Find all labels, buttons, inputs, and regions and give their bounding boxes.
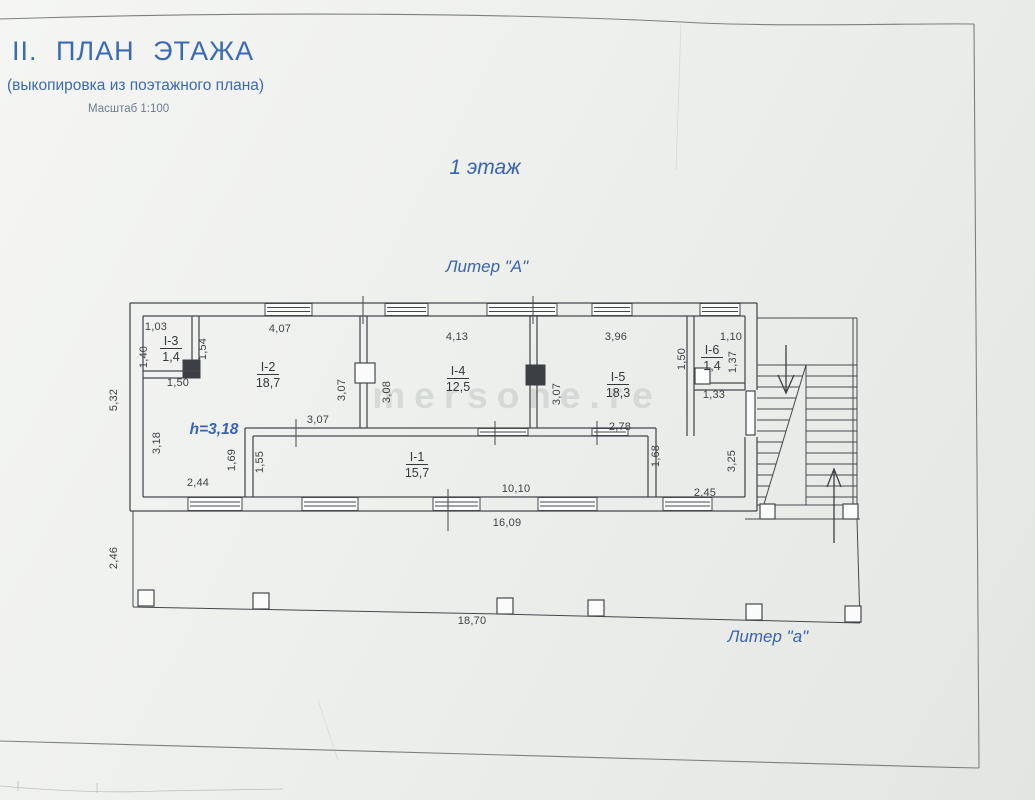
dimension-label: 3,96 xyxy=(605,331,627,343)
dimension-label: 5,32 xyxy=(108,389,120,411)
room-area: 12,5 xyxy=(446,380,470,394)
dimension-label: 1,33 xyxy=(703,389,725,401)
room-number: I-6 xyxy=(705,343,720,357)
dimension-label: 3,07 xyxy=(336,379,348,401)
room-area: 1,4 xyxy=(162,350,179,364)
window xyxy=(487,304,557,316)
down-arrow-icon xyxy=(778,345,794,393)
dimension-label: 1,54 xyxy=(197,338,209,360)
room-number: I-4 xyxy=(451,364,466,378)
dimension-label: 2,44 xyxy=(187,477,209,489)
paper-crease-line xyxy=(318,700,338,760)
post xyxy=(843,504,858,519)
window xyxy=(663,498,712,511)
building-label: Литер "А" xyxy=(445,257,529,276)
dimension-label: 4,13 xyxy=(446,331,468,343)
glazed-opening xyxy=(478,429,528,436)
room-number: I-3 xyxy=(164,334,179,348)
post xyxy=(588,600,604,616)
dimension-label: 1,55 xyxy=(254,451,266,473)
dimension-label: 3,07 xyxy=(307,414,329,426)
post xyxy=(746,604,762,620)
paper-fold-line xyxy=(676,24,681,170)
dimension-label: 2,78 xyxy=(609,421,631,433)
floor-plan-drawing: mersone.re xyxy=(0,0,1035,800)
room-area: 18,3 xyxy=(606,386,630,400)
scanned-floor-plan-page: { "page": { "title": "II. ПЛАН ЭТАЖА", "… xyxy=(0,0,1035,800)
dimension-label: 16,09 xyxy=(493,517,522,529)
window xyxy=(538,498,597,511)
dimension-label: 1,37 xyxy=(727,351,739,373)
room-number: I-1 xyxy=(410,450,425,464)
stair-cut-line xyxy=(764,365,806,504)
window xyxy=(433,498,480,511)
dimension-label: 2,45 xyxy=(694,487,716,499)
room-area: 15,7 xyxy=(405,466,429,480)
north-windows xyxy=(265,304,740,316)
pier xyxy=(355,363,375,383)
post xyxy=(845,606,861,622)
room-area: 1,4 xyxy=(703,359,720,373)
dimension-label: 3,18 xyxy=(151,432,163,454)
window xyxy=(302,498,358,511)
dimension-label: 3,07 xyxy=(551,383,563,405)
post xyxy=(253,593,269,609)
dimension-label: 1,50 xyxy=(676,348,688,370)
dimension-label: 4,07 xyxy=(269,323,291,335)
up-arrow-icon xyxy=(827,469,841,543)
pier xyxy=(183,360,200,378)
dimension-label: 10,10 xyxy=(502,483,531,495)
annex-label: Литер "а" xyxy=(727,627,809,646)
post xyxy=(760,504,775,519)
dimension-label: 1,69 xyxy=(226,449,238,471)
ceiling-height-label: h=3,18 xyxy=(190,421,239,438)
pier xyxy=(526,365,545,385)
dimension-label: 1,40 xyxy=(138,346,150,368)
door-jamb xyxy=(746,391,755,435)
dimension-label: 2,46 xyxy=(108,547,120,569)
south-windows xyxy=(188,498,712,511)
window xyxy=(700,304,740,316)
post xyxy=(497,598,513,614)
dimension-label: 1,68 xyxy=(650,445,662,467)
post xyxy=(138,590,154,606)
floor-label: 1 этаж xyxy=(449,156,522,179)
room-number: I-5 xyxy=(611,370,626,384)
dimension-label: 1,03 xyxy=(145,321,167,333)
dimension-label: 18,70 xyxy=(458,615,487,627)
room-number: I-2 xyxy=(261,360,276,374)
room-area: 18,7 xyxy=(256,376,280,390)
window xyxy=(265,304,312,316)
dimension-label: 3,25 xyxy=(726,450,738,472)
window xyxy=(188,498,242,511)
window xyxy=(385,304,428,316)
dimension-label: 1,10 xyxy=(720,331,742,343)
staircase xyxy=(745,318,860,543)
dimension-label: 1,50 xyxy=(167,377,189,389)
dimension-label: 3,08 xyxy=(381,381,393,403)
window xyxy=(592,304,632,316)
